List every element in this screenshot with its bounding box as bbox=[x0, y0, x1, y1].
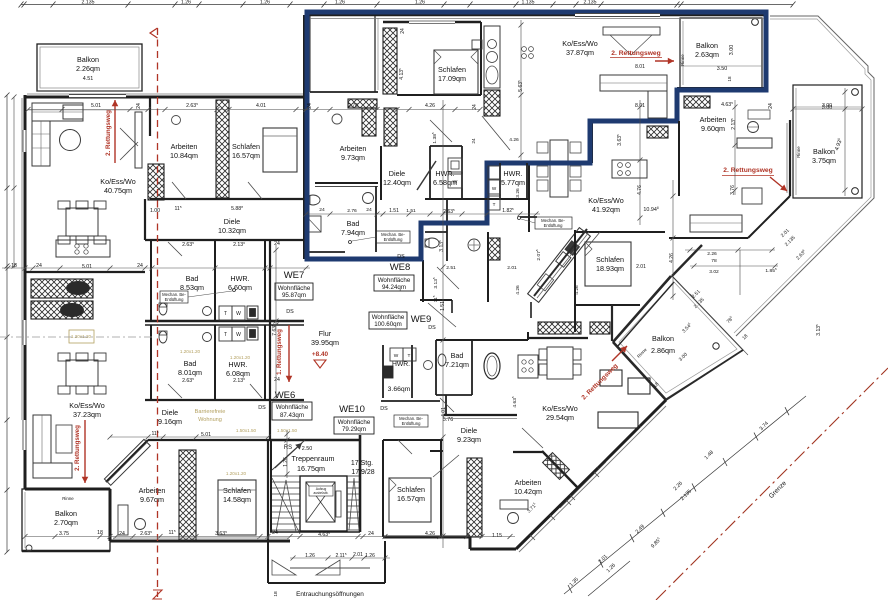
svg-text:W: W bbox=[394, 353, 399, 359]
svg-text:1.26: 1.26 bbox=[415, 0, 425, 6]
svg-text:2.86qm: 2.86qm bbox=[651, 346, 675, 355]
svg-text:5.01: 5.01 bbox=[91, 103, 101, 109]
svg-text:W: W bbox=[492, 186, 497, 191]
svg-text:2.135: 2.135 bbox=[82, 0, 95, 6]
svg-text:HWR.: HWR. bbox=[503, 169, 522, 178]
svg-text:DS: DS bbox=[380, 406, 388, 412]
svg-text:16.57qm: 16.57qm bbox=[397, 494, 425, 503]
svg-text:Entrauchungsöffnungen: Entrauchungsöffnungen bbox=[296, 591, 364, 598]
svg-text:Balkon: Balkon bbox=[813, 147, 835, 156]
svg-text:5.76: 5.76 bbox=[443, 417, 454, 423]
svg-text:4.26: 4.26 bbox=[515, 285, 521, 295]
svg-text:2.70qm: 2.70qm bbox=[54, 518, 78, 527]
svg-text:9.16qm: 9.16qm bbox=[158, 417, 182, 426]
svg-text:7.94qm: 7.94qm bbox=[341, 228, 365, 237]
svg-text:41.92qm: 41.92qm bbox=[592, 205, 620, 214]
svg-text:Entlüftung: Entlüftung bbox=[165, 297, 185, 302]
svg-text:Balkon: Balkon bbox=[696, 41, 718, 50]
svg-text:16.57qm: 16.57qm bbox=[232, 151, 260, 160]
svg-text:3.66qm: 3.66qm bbox=[388, 386, 411, 393]
svg-text:2.135: 2.135 bbox=[584, 0, 597, 6]
svg-text:3.75qm: 3.75qm bbox=[812, 156, 836, 165]
svg-text:Diele: Diele bbox=[461, 426, 477, 435]
svg-text:Rinne: Rinne bbox=[796, 146, 801, 158]
svg-text:Wohnfläche: Wohnfläche bbox=[372, 314, 405, 321]
svg-text:Schlafen: Schlafen bbox=[223, 486, 251, 495]
svg-text:2.01: 2.01 bbox=[507, 265, 517, 271]
svg-text:Diele: Diele bbox=[389, 169, 405, 178]
svg-text:10.84qm: 10.84qm bbox=[170, 151, 198, 160]
svg-text:39.95qm: 39.95qm bbox=[311, 338, 339, 347]
svg-text:W: W bbox=[236, 332, 241, 338]
svg-text:WE8: WE8 bbox=[390, 262, 411, 273]
svg-text:2. Rettungsweg: 2. Rettungsweg bbox=[74, 425, 81, 471]
svg-text:1.26: 1.26 bbox=[335, 0, 345, 6]
svg-text:2. Rettungsweg: 2. Rettungsweg bbox=[611, 50, 660, 57]
svg-text:HWR.: HWR. bbox=[228, 360, 247, 369]
svg-text:Schlafen: Schlafen bbox=[596, 255, 624, 264]
svg-text:Balkon: Balkon bbox=[77, 55, 99, 64]
svg-text:4.26: 4.26 bbox=[425, 103, 435, 109]
svg-text:2. Rettungsweg: 2. Rettungsweg bbox=[105, 110, 112, 156]
svg-text:DS: DS bbox=[258, 405, 266, 411]
svg-text:3.02: 3.02 bbox=[709, 269, 719, 275]
svg-text:95.87qm: 95.87qm bbox=[282, 292, 306, 299]
svg-text:+8.40: +8.40 bbox=[312, 351, 329, 358]
svg-text:HWR.: HWR. bbox=[435, 169, 454, 178]
svg-text:2.50: 2.50 bbox=[302, 446, 313, 452]
svg-text:4.26: 4.26 bbox=[425, 531, 435, 537]
svg-text:WE9: WE9 bbox=[411, 314, 432, 325]
svg-text:24: 24 bbox=[471, 138, 476, 144]
svg-text:WE7: WE7 bbox=[284, 270, 305, 281]
svg-text:Wohnfläche: Wohnfläche bbox=[378, 277, 411, 284]
svg-text:Arbeiten: Arbeiten bbox=[515, 478, 542, 487]
svg-text:1.26: 1.26 bbox=[260, 0, 270, 6]
svg-text:10.32qm: 10.32qm bbox=[218, 226, 246, 235]
svg-text:9.67qm: 9.67qm bbox=[140, 495, 164, 504]
svg-text:2.26: 2.26 bbox=[707, 251, 717, 257]
svg-text:1.51: 1.51 bbox=[406, 208, 416, 214]
svg-text:6.08qm: 6.08qm bbox=[226, 369, 250, 378]
svg-text:Diele: Diele bbox=[224, 217, 240, 226]
svg-text:10.948: 10.948 bbox=[643, 206, 659, 213]
svg-text:3.50: 3.50 bbox=[717, 66, 728, 72]
svg-text:Ko/Ess/Wo: Ko/Ess/Wo bbox=[542, 404, 577, 413]
svg-text:10.42qm: 10.42qm bbox=[514, 487, 542, 496]
svg-text:24: 24 bbox=[366, 207, 372, 213]
svg-text:Bad: Bad bbox=[451, 351, 464, 360]
svg-text:Flur: Flur bbox=[319, 329, 332, 338]
svg-text:2.01: 2.01 bbox=[353, 552, 363, 558]
svg-text:2.51: 2.51 bbox=[446, 265, 456, 271]
svg-text:T: T bbox=[224, 332, 227, 338]
svg-text:87.43qm: 87.43qm bbox=[280, 412, 304, 419]
svg-text:Schlafen: Schlafen bbox=[397, 485, 425, 494]
svg-text:24: 24 bbox=[136, 103, 142, 109]
svg-text:5.77qm: 5.77qm bbox=[501, 178, 525, 187]
svg-text:8.01qm: 8.01qm bbox=[178, 368, 202, 377]
svg-text:Diele: Diele bbox=[162, 408, 178, 417]
svg-text:5.01: 5.01 bbox=[82, 264, 92, 270]
svg-text:Bad: Bad bbox=[186, 274, 199, 283]
svg-text:16.75qm: 16.75qm bbox=[297, 464, 325, 473]
svg-text:100.60qm: 100.60qm bbox=[374, 321, 402, 328]
svg-text:W: W bbox=[453, 180, 458, 186]
svg-text:Bad: Bad bbox=[347, 219, 360, 228]
svg-text:8.53qm: 8.53qm bbox=[180, 283, 204, 292]
svg-text:Entlüftung: Entlüftung bbox=[384, 237, 404, 242]
svg-text:Entlüftung: Entlüftung bbox=[544, 223, 564, 228]
svg-text:24: 24 bbox=[368, 531, 374, 537]
svg-text:18: 18 bbox=[273, 591, 279, 597]
svg-text:2. Rettungsweg: 2. Rettungsweg bbox=[723, 167, 772, 174]
svg-text:24: 24 bbox=[119, 531, 125, 537]
svg-text:4.51: 4.51 bbox=[83, 76, 94, 82]
svg-text:Treppenraum: Treppenraum bbox=[292, 454, 335, 463]
svg-text:WE6: WE6 bbox=[275, 390, 296, 401]
svg-text:3.75: 3.75 bbox=[59, 531, 69, 537]
svg-text:17.09qm: 17.09qm bbox=[438, 74, 466, 83]
svg-text:DS: DS bbox=[286, 309, 294, 315]
svg-text:1.20x1.20: 1.20x1.20 bbox=[180, 349, 201, 354]
svg-text:37.87qm: 37.87qm bbox=[566, 48, 594, 57]
svg-text:Arbeiten: Arbeiten bbox=[700, 115, 727, 124]
svg-text:Wohnfläche: Wohnfläche bbox=[278, 285, 311, 292]
svg-text:1.20x1.20: 1.20x1.20 bbox=[226, 471, 247, 476]
svg-text:RS: RS bbox=[284, 445, 292, 451]
svg-text:HWR.: HWR. bbox=[392, 361, 410, 368]
svg-text:Ko/Ess/Wo: Ko/Ess/Wo bbox=[562, 39, 597, 48]
svg-text:Balkon: Balkon bbox=[55, 509, 77, 518]
svg-text:2.63qm: 2.63qm bbox=[695, 50, 719, 59]
svg-text:29.54qm: 29.54qm bbox=[546, 413, 574, 422]
svg-text:Wohnfläche: Wohnfläche bbox=[276, 404, 309, 411]
svg-text:Rinne: Rinne bbox=[62, 496, 74, 501]
svg-text:6.60qm: 6.60qm bbox=[228, 283, 252, 292]
svg-text:DS: DS bbox=[397, 254, 405, 260]
svg-text:T: T bbox=[224, 311, 227, 317]
svg-text:1.20x1.20: 1.20x1.20 bbox=[230, 355, 251, 360]
svg-text:2.76: 2.76 bbox=[348, 103, 358, 109]
svg-text:Arbeiten: Arbeiten bbox=[139, 486, 166, 495]
svg-text:ausbrüstb.: ausbrüstb. bbox=[314, 491, 329, 495]
svg-text:3.00: 3.00 bbox=[822, 103, 832, 109]
svg-text:1.26: 1.26 bbox=[283, 457, 289, 467]
svg-text:1.26: 1.26 bbox=[181, 0, 191, 6]
svg-text:94.24qm: 94.24qm bbox=[382, 284, 406, 291]
svg-text:24: 24 bbox=[472, 104, 478, 110]
svg-text:Balkon: Balkon bbox=[652, 334, 674, 343]
svg-text:40.75qm: 40.75qm bbox=[104, 186, 132, 195]
svg-text:4.26: 4.26 bbox=[669, 253, 675, 263]
svg-text:Schlafen: Schlafen bbox=[438, 65, 466, 74]
svg-text:Wohnung: Wohnung bbox=[198, 417, 222, 423]
svg-text:2.76: 2.76 bbox=[347, 208, 357, 214]
svg-text:Ko/Ess/Wo: Ko/Ess/Wo bbox=[69, 401, 104, 410]
svg-text:Barrierefreie: Barrierefreie bbox=[195, 409, 226, 415]
svg-text:1.00: 1.00 bbox=[150, 208, 160, 214]
svg-text:1.20x1.20: 1.20x1.20 bbox=[71, 334, 92, 339]
svg-text:T: T bbox=[408, 353, 411, 359]
svg-text:Ko/Ess/Wo: Ko/Ess/Wo bbox=[100, 177, 135, 186]
svg-text:12.40qm: 12.40qm bbox=[383, 178, 411, 187]
svg-text:Arbeiten: Arbeiten bbox=[171, 142, 198, 151]
svg-text:24: 24 bbox=[274, 377, 280, 383]
svg-text:18.93qm: 18.93qm bbox=[596, 264, 624, 273]
svg-text:1.15: 1.15 bbox=[492, 533, 502, 539]
svg-text:Schlafen: Schlafen bbox=[232, 142, 260, 151]
svg-text:4.26: 4.26 bbox=[509, 137, 519, 143]
svg-text:Entlüftung: Entlüftung bbox=[402, 421, 422, 426]
svg-text:8.01: 8.01 bbox=[635, 64, 645, 70]
svg-text:3.00: 3.00 bbox=[729, 45, 735, 56]
svg-text:DS: DS bbox=[428, 325, 436, 331]
svg-text:17 Stg.: 17 Stg. bbox=[351, 460, 373, 467]
svg-text:24: 24 bbox=[274, 241, 280, 247]
svg-text:37.23qm: 37.23qm bbox=[73, 410, 101, 419]
svg-text:14.58qm: 14.58qm bbox=[223, 495, 251, 504]
svg-text:7.21qm: 7.21qm bbox=[445, 360, 469, 369]
svg-text:9.23qm: 9.23qm bbox=[457, 435, 481, 444]
svg-text:Arbeiten: Arbeiten bbox=[340, 144, 367, 153]
svg-text:17,9/28: 17,9/28 bbox=[351, 469, 374, 476]
svg-text:24: 24 bbox=[272, 530, 278, 536]
svg-text:18: 18 bbox=[727, 76, 732, 82]
svg-text:1.50x1.50: 1.50x1.50 bbox=[236, 428, 257, 433]
svg-text:24: 24 bbox=[768, 103, 774, 109]
svg-text:WE10: WE10 bbox=[339, 404, 365, 415]
svg-text:79.29qm: 79.29qm bbox=[342, 426, 366, 433]
svg-text:9.73qm: 9.73qm bbox=[341, 153, 365, 162]
svg-text:Bad: Bad bbox=[184, 359, 197, 368]
svg-text:9.60qm: 9.60qm bbox=[701, 124, 725, 133]
svg-text:24: 24 bbox=[319, 207, 325, 213]
svg-text:78: 78 bbox=[711, 258, 717, 264]
svg-text:Wohnfläche: Wohnfläche bbox=[338, 419, 371, 426]
svg-text:4.01: 4.01 bbox=[256, 103, 266, 109]
svg-text:1.51: 1.51 bbox=[389, 208, 399, 214]
svg-text:HWR.: HWR. bbox=[230, 274, 249, 283]
svg-text:Ko/Ess/Wo: Ko/Ess/Wo bbox=[588, 196, 623, 205]
svg-text:1.135: 1.135 bbox=[522, 0, 535, 6]
svg-text:18: 18 bbox=[97, 530, 103, 536]
svg-text:W: W bbox=[236, 311, 241, 317]
svg-text:4.01: 4.01 bbox=[441, 407, 447, 417]
svg-text:3.26: 3.26 bbox=[515, 188, 521, 198]
svg-text:2.26qm: 2.26qm bbox=[76, 64, 100, 73]
svg-text:Rinne: Rinne bbox=[680, 54, 685, 66]
svg-text:2.01: 2.01 bbox=[636, 264, 646, 270]
svg-text:24: 24 bbox=[400, 28, 406, 34]
svg-text:T: T bbox=[493, 202, 496, 207]
